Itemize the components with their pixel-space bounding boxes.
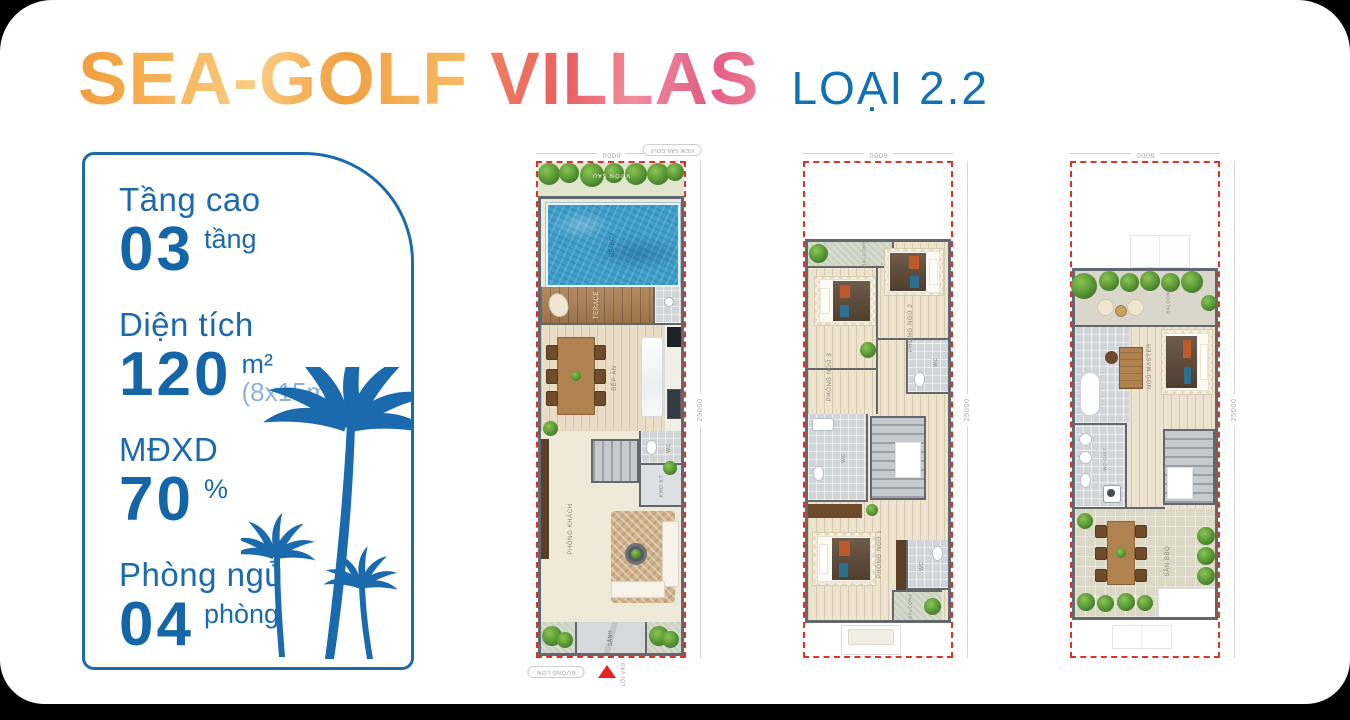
plan1-depth-value: 25000: [695, 394, 704, 425]
spec-density-unit: %: [204, 477, 228, 503]
rear-garden: VƯỜN SAU: [538, 163, 684, 196]
title-villas: VILLAS: [490, 36, 759, 121]
chair-icon: [1135, 547, 1147, 560]
plant-icon: [1120, 273, 1139, 292]
porch-bench-icon: [848, 629, 894, 645]
road-tag: ĐƯỜNG LỚN: [528, 666, 585, 678]
vanity-desk: [808, 504, 862, 518]
plant-icon: [663, 461, 677, 475]
plan1-width-value: 6000: [597, 150, 626, 160]
chair-icon: [546, 391, 558, 406]
bed-icon: [884, 248, 944, 296]
living-room-label: PHÒNG KHÁCH: [568, 503, 574, 554]
plant-icon: [866, 504, 878, 516]
spec-area-label: Diện tích: [119, 306, 411, 344]
plant-icon: [571, 371, 581, 381]
bed-icon: [814, 276, 876, 326]
tv-cabinet: [541, 439, 549, 559]
wc-rear: WC: [906, 540, 948, 590]
wc-middle-label: WC: [841, 453, 847, 463]
bed-icon: [1161, 329, 1213, 395]
plant-icon: [924, 598, 941, 615]
lobby-label: SẢNH: [608, 629, 614, 645]
front-balcony: BALCONY: [808, 242, 894, 268]
plant-icon: [1077, 513, 1093, 529]
plan3-lot-boundary: BALCONY NGỦ MASTER WC GIẶT: [1070, 161, 1220, 658]
spec-floors: Tầng cao 03 tầng: [119, 181, 411, 280]
terrace-label: TERACE: [594, 291, 600, 319]
sofa-icon: [611, 581, 665, 598]
plant-icon: [1161, 273, 1180, 292]
chair-icon: [594, 391, 606, 406]
entrance-arrow-icon: [598, 665, 616, 678]
plant-icon: [1117, 593, 1135, 611]
plan1-depth-dimension: 25000: [694, 161, 706, 658]
palm-trees-icon: [241, 367, 411, 667]
kitchen-island: [641, 337, 663, 417]
chair-icon: [1135, 569, 1147, 582]
plant-icon: [538, 163, 560, 185]
chair-icon: [546, 369, 558, 384]
plan2-lot-boundary: BALCONY PHÒNG NGỦ 2 PHÒNG NGỦ 3 WC: [803, 161, 953, 658]
chair-icon: [1095, 525, 1107, 538]
entry-lobby: SẢNH: [575, 622, 647, 653]
plan3-width-dimension: 6000: [1070, 148, 1220, 158]
plant-icon: [1201, 295, 1217, 311]
plant-icon: [1077, 593, 1095, 611]
wc-rear-label: WC: [919, 561, 925, 571]
plant-icon: [557, 632, 573, 648]
spec-area-value: 120: [119, 346, 231, 405]
washing-machine-icon: [1103, 485, 1121, 503]
chair-icon: [1095, 569, 1107, 582]
roof-outline: [1130, 235, 1190, 268]
view-golf-label: VIEW SÂN GOLF: [650, 147, 695, 153]
rear-balcony: BALCONY: [892, 590, 942, 620]
plant-icon: [543, 421, 558, 436]
rear-balcony-label: BALCONY: [908, 593, 913, 619]
lounge-chair-icon: [546, 291, 571, 320]
rattan-chair-icon: [1127, 299, 1144, 316]
wardrobe: [896, 540, 906, 590]
plan3-width-value: 6000: [1131, 150, 1160, 160]
lower-roof-steps: [1112, 625, 1172, 649]
variant-label: LOẠI 2.2: [791, 61, 989, 115]
spec-floors-label: Tầng cao: [119, 181, 411, 219]
plan1-building: BỂ BƠI TERACE: [538, 196, 684, 656]
sink-icon: [812, 418, 834, 431]
plant-icon: [666, 163, 684, 181]
brochure-card: SEA-GOLF VILLAS LOẠI 2.2 Tầng cao 03 tần…: [0, 0, 1350, 704]
plant-icon: [860, 342, 876, 358]
bbq-label: SÂN BBQ: [1165, 546, 1171, 577]
balcony-label: BALCONY: [1166, 288, 1171, 314]
wardrobe: [1119, 347, 1143, 389]
spec-density-value: 70: [119, 471, 194, 530]
plan1-lot-boundary: VƯỜN SAU BỂ BƠI TERACE: [536, 161, 686, 658]
plant-icon: [1140, 271, 1160, 291]
stool-icon: [1105, 351, 1118, 364]
chair-icon: [1135, 525, 1147, 538]
plan2-width-dimension: 6000: [803, 148, 953, 158]
dining-table: [557, 337, 595, 415]
plant-icon: [1071, 273, 1097, 299]
plant-icon: [1099, 271, 1119, 291]
wc-label: WC: [666, 443, 672, 453]
plant-icon: [1197, 567, 1215, 585]
entry-planter: [541, 622, 575, 653]
sofa-icon: [662, 521, 679, 587]
page-title: SEA-GOLF VILLAS LOẠI 2.2: [78, 36, 989, 121]
swimming-pool: BỂ BƠI: [546, 203, 680, 287]
sink-icon: [1079, 433, 1092, 446]
front-balcony-label: BALCONY: [862, 241, 867, 267]
shower-drain-icon: [664, 297, 674, 307]
plant-icon: [1197, 527, 1215, 545]
wc-laundry: WC GIẶT: [1075, 423, 1127, 509]
plan2-depth-value: 25000: [962, 394, 971, 425]
side-table-icon: [1115, 305, 1127, 317]
storage-label: KHO KT: [659, 475, 665, 497]
master-balcony: BALCONY: [1075, 271, 1215, 327]
plant-icon: [1137, 595, 1153, 611]
plant-icon: [1197, 547, 1215, 565]
refrigerator-icon: [667, 389, 681, 419]
plant-icon: [631, 549, 641, 559]
plan2-width-value: 6000: [864, 150, 893, 160]
chair-icon: [594, 369, 606, 384]
chair-icon: [1095, 547, 1107, 560]
plant-icon: [662, 631, 679, 648]
open-void: [1158, 588, 1215, 617]
entry-porch: [841, 625, 901, 655]
plan3-building: BALCONY NGỦ MASTER WC GIẶT: [1072, 268, 1218, 620]
plan2-depth-dimension: 25000: [961, 161, 973, 658]
rattan-chair-icon: [1097, 299, 1114, 316]
spec-floors-value-row: 03 tầng: [119, 221, 411, 280]
wc-front-label: WC: [933, 357, 939, 367]
stairs: [591, 439, 639, 483]
bathtub-icon: [1079, 371, 1101, 417]
plan3-depth-value: 25000: [1229, 394, 1238, 425]
pool-label: BỂ BƠI: [610, 233, 616, 257]
bedroom3-label: PHÒNG NGỦ 3: [827, 353, 833, 402]
cooktop-icon: [667, 327, 681, 347]
kitchen-dining: BẾP ĂN: [541, 325, 681, 431]
spec-panel: Tầng cao 03 tầng Diện tích 120 m² (8x15m…: [82, 152, 414, 670]
wc-ground: WC: [639, 431, 681, 465]
bbq-table: [1107, 521, 1135, 585]
entry-label: LỐI VÀO: [621, 662, 627, 686]
plant-icon: [809, 244, 828, 263]
spec-floors-value: 03: [119, 221, 194, 280]
plant-icon: [1181, 271, 1203, 293]
plant-icon: [1116, 548, 1126, 558]
plant-icon: [1097, 595, 1114, 612]
outdoor-shower: [653, 287, 681, 325]
plan3-depth-dimension: 25000: [1228, 161, 1240, 658]
title-sea-golf: SEA-GOLF: [78, 36, 468, 121]
entry-planter: [647, 622, 681, 653]
kitchen-label: BẾP ĂN: [612, 365, 618, 391]
garden-label: VƯỜN SAU: [592, 172, 630, 178]
spec-floors-unit: tầng: [204, 227, 257, 253]
plan2-building: BALCONY PHÒNG NGỦ 2 PHÒNG NGỦ 3 WC: [805, 239, 951, 623]
plant-icon: [559, 163, 579, 183]
chair-icon: [546, 345, 558, 360]
chair-icon: [594, 345, 606, 360]
stairs: [1163, 429, 1215, 505]
view-golf-tag: VIEW SÂN GOLF: [643, 144, 702, 156]
bedroom2-label: PHÒNG NGỦ 2: [908, 304, 914, 353]
wc-middle: WC: [808, 414, 868, 502]
spec-bedrooms-value: 04: [119, 596, 194, 655]
sink-icon: [1079, 451, 1092, 464]
master-bedroom-label: NGỦ MASTER: [1147, 343, 1153, 389]
wc-laundry-label: WC GIẶT: [1103, 447, 1108, 470]
road-label: ĐƯỜNG LỚN: [537, 669, 576, 675]
terrace: TERACE: [541, 287, 653, 325]
stairs: [870, 416, 926, 500]
bedroom1-label: PHÒNG NGỦ 1: [877, 530, 883, 579]
bbq-terrace: SÂN BBQ: [1075, 509, 1215, 617]
bed-icon: [812, 532, 876, 586]
